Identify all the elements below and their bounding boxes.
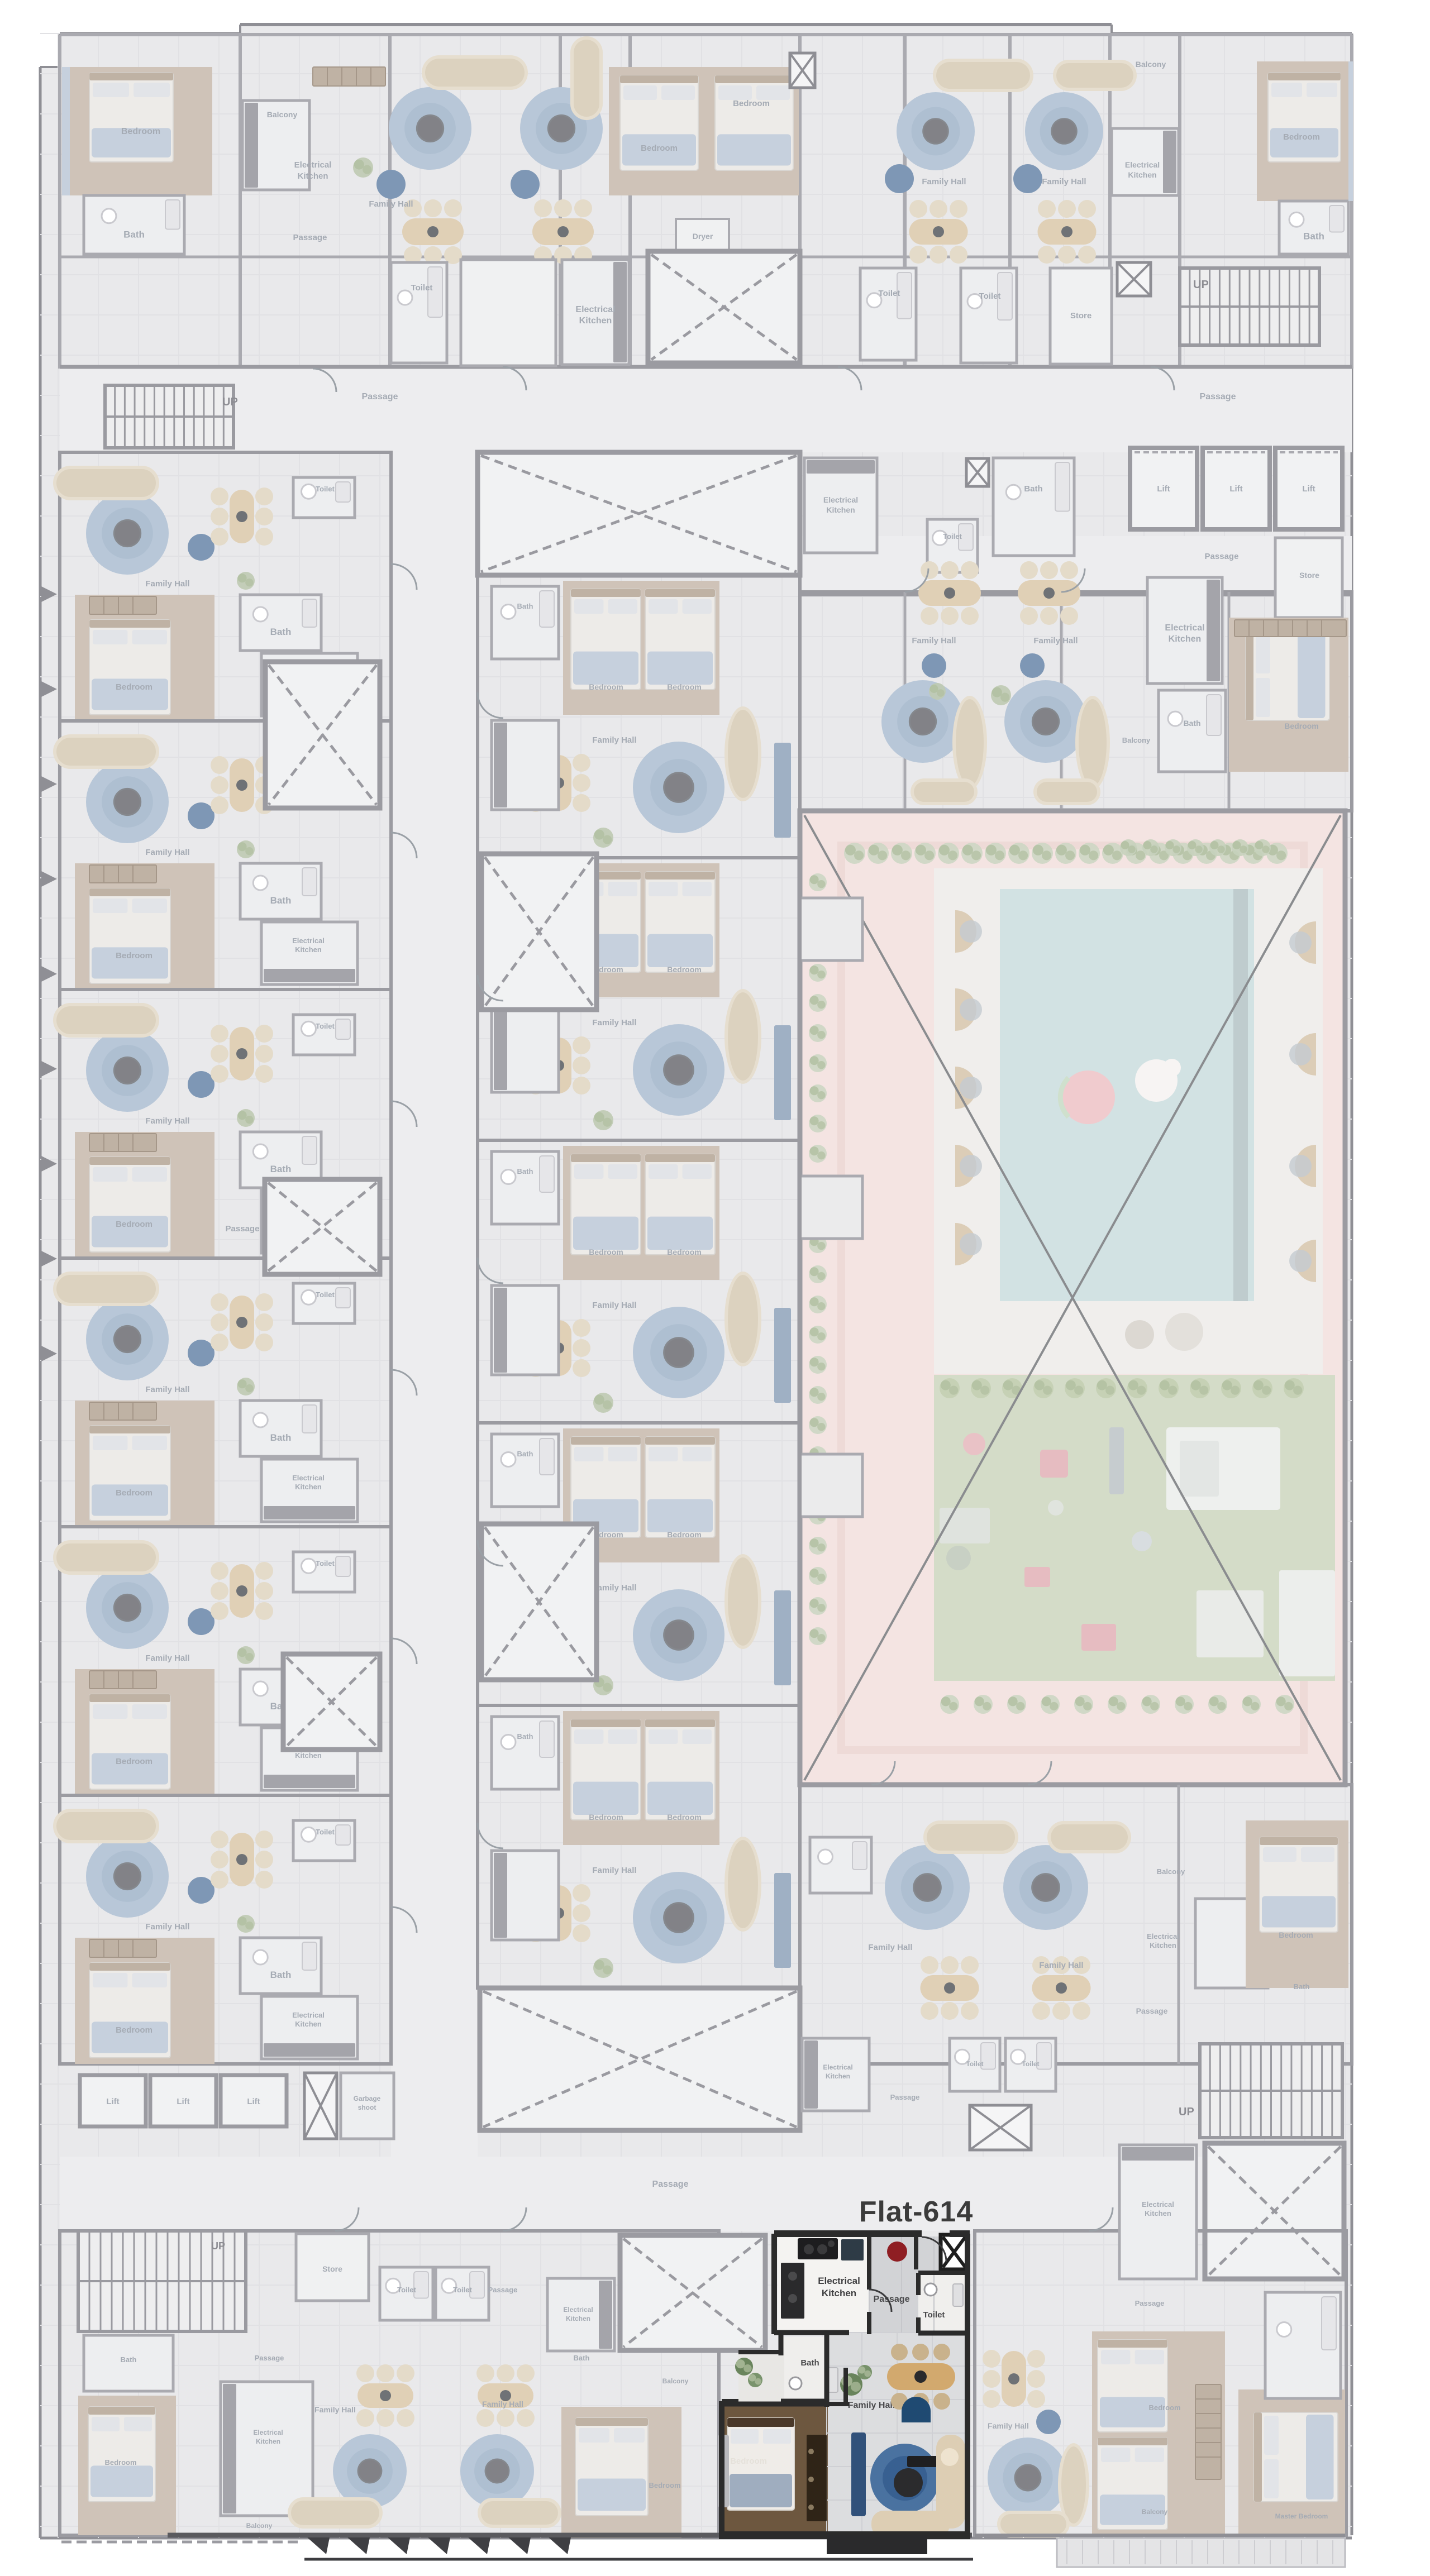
svg-text:Balcony: Balcony [1142,2508,1168,2516]
svg-text:Kitchen: Kitchen [256,2438,280,2445]
svg-text:Bedroom: Bedroom [733,99,770,108]
svg-text:Family Hall: Family Hall [145,1922,189,1932]
svg-text:Balcony: Balcony [246,2522,273,2530]
svg-text:Family Hall: Family Hall [1033,636,1078,646]
svg-text:Bedroom: Bedroom [667,1248,701,1256]
svg-text:Kitchen: Kitchen [1128,170,1156,179]
svg-text:Bedroom: Bedroom [116,1220,152,1229]
svg-text:Family Hall: Family Hall [592,735,636,745]
svg-text:Kitchen: Kitchen [1145,2209,1171,2217]
svg-text:Family Hall: Family Hall [912,636,956,646]
svg-text:shoot: shoot [358,2104,376,2111]
svg-text:Bedroom: Bedroom [116,951,152,960]
svg-text:Family Hall: Family Hall [988,2421,1029,2430]
svg-text:Lift: Lift [1157,484,1170,494]
svg-text:Passage: Passage [890,2093,920,2101]
svg-text:Toilet: Toilet [397,2286,416,2294]
svg-text:Toilet: Toilet [316,1291,335,1299]
svg-text:Family Hall: Family Hall [1042,177,1086,187]
svg-text:Lift: Lift [247,2097,260,2106]
svg-text:Bath: Bath [270,1432,292,1443]
svg-text:Bedroom: Bedroom [116,1757,152,1766]
svg-text:Kitchen: Kitchen [295,2020,322,2028]
svg-text:Family Hall: Family Hall [145,579,189,589]
svg-text:Master Bedroom: Master Bedroom [1275,2512,1328,2520]
svg-text:Bath: Bath [1303,231,1324,241]
svg-text:Flat-614: Flat-614 [859,2196,974,2228]
svg-text:Toilet: Toilet [943,532,962,541]
svg-text:Lift: Lift [177,2097,189,2106]
svg-text:Electrical: Electrical [1147,1932,1179,1941]
svg-text:Electrical: Electrical [823,2063,852,2071]
svg-text:Kitchen: Kitchen [826,505,855,514]
svg-text:Bedroom: Bedroom [589,1813,623,1822]
svg-text:Bedroom: Bedroom [1283,132,1320,142]
svg-text:UP: UP [1193,279,1209,291]
svg-text:Bedroom: Bedroom [667,1813,701,1822]
svg-text:Toilet: Toilet [316,1828,335,1836]
svg-text:Family Hall: Family Hall [868,1943,912,1952]
svg-text:Bedroom: Bedroom [667,1530,701,1539]
svg-text:Bedroom: Bedroom [667,682,701,691]
svg-text:Bath: Bath [517,1732,533,1741]
svg-text:Family Hall: Family Hall [145,1116,189,1126]
svg-text:Family Hall: Family Hall [482,2400,523,2408]
svg-text:Bath: Bath [517,1167,533,1175]
svg-text:Bath: Bath [517,1450,533,1458]
svg-text:Family Hall: Family Hall [592,1866,636,1875]
svg-text:Bedroom: Bedroom [730,2456,767,2466]
svg-text:Bath: Bath [270,1164,292,1174]
svg-text:Kitchen: Kitchen [579,316,612,326]
svg-text:UP: UP [1179,2106,1194,2118]
svg-text:Family Hall: Family Hall [369,199,413,209]
svg-text:Passage: Passage [362,392,398,402]
svg-text:Bath: Bath [1294,1982,1310,1991]
svg-text:Lift: Lift [1302,484,1315,494]
svg-text:Kitchen: Kitchen [297,171,328,181]
svg-text:Passage: Passage [1200,392,1236,402]
svg-text:Passage: Passage [226,1224,260,1234]
svg-text:Toilet: Toilet [966,2060,983,2068]
svg-text:Balcony: Balcony [662,2377,689,2385]
svg-text:Kitchen: Kitchen [826,2072,850,2080]
svg-text:Bedroom: Bedroom [649,2481,680,2489]
svg-text:Bath: Bath [1024,484,1042,494]
svg-text:Toilet: Toilet [923,2310,945,2320]
svg-text:Store: Store [1070,311,1091,321]
svg-text:Toilet: Toilet [316,1022,335,1030]
svg-text:Electrical: Electrical [1165,623,1204,633]
svg-text:Bath: Bath [270,1970,292,1980]
svg-text:Balcony: Balcony [1122,736,1151,744]
svg-text:Bath: Bath [123,230,145,240]
svg-text:Bedroom: Bedroom [116,682,152,692]
svg-text:Balcony: Balcony [1157,1867,1185,1876]
svg-text:Bath: Bath [800,2358,819,2368]
svg-text:Kitchen: Kitchen [1150,1941,1176,1949]
svg-text:Lift: Lift [106,2097,119,2106]
svg-text:Bedroom: Bedroom [116,2025,152,2035]
svg-text:Electrical: Electrical [575,305,615,314]
svg-text:Family Hall: Family Hall [848,2401,895,2410]
svg-text:Family Hall: Family Hall [145,1385,189,1394]
svg-text:Passage: Passage [652,2180,689,2189]
svg-text:Electrical: Electrical [563,2306,593,2314]
svg-text:Electrical: Electrical [292,936,325,945]
svg-text:Bedroom: Bedroom [589,682,623,691]
svg-text:Bath: Bath [574,2354,590,2362]
svg-text:Dryer: Dryer [693,232,713,241]
svg-text:Bedroom: Bedroom [116,1488,152,1498]
svg-text:Family Hall: Family Hall [592,1301,636,1310]
svg-text:Bedroom: Bedroom [1284,721,1318,730]
svg-text:Family Hall: Family Hall [145,1653,189,1663]
svg-text:Passage: Passage [874,2295,910,2304]
svg-text:Passage: Passage [488,2286,518,2294]
svg-text:Electrical: Electrical [292,2011,325,2019]
svg-text:Electrical: Electrical [294,160,332,170]
svg-text:Bath: Bath [121,2355,137,2364]
svg-text:Lift: Lift [1229,484,1242,494]
svg-text:Toilet: Toilet [453,2286,472,2294]
svg-text:Kitchen: Kitchen [1169,634,1202,644]
svg-text:Passage: Passage [1205,552,1239,561]
svg-text:Store: Store [322,2264,342,2273]
svg-text:Family Hall: Family Hall [1039,1961,1083,1970]
svg-text:Toilet: Toilet [879,289,900,298]
svg-text:Bath: Bath [1183,719,1200,728]
svg-text:Electrical: Electrical [818,2276,860,2286]
svg-text:Passage: Passage [255,2354,284,2362]
svg-text:Bedroom: Bedroom [641,144,678,153]
svg-text:Family Hall: Family Hall [145,848,189,857]
svg-text:Bedroom: Bedroom [104,2458,136,2467]
svg-text:Toilet: Toilet [979,291,1001,301]
svg-text:Balcony: Balcony [267,110,298,119]
svg-text:Store: Store [1299,571,1319,580]
svg-text:Family Hall: Family Hall [922,177,966,187]
svg-text:Kitchen: Kitchen [295,945,322,954]
svg-text:Electrical: Electrical [1142,2200,1174,2209]
svg-text:Kitchen: Kitchen [295,1483,322,1491]
svg-text:Balcony: Balcony [1136,60,1166,69]
svg-text:Garbage: Garbage [354,2095,381,2102]
svg-text:UP: UP [222,396,238,408]
svg-text:Toilet: Toilet [316,485,335,493]
svg-text:Electrical: Electrical [253,2429,283,2436]
svg-text:Toilet: Toilet [1022,2060,1039,2068]
svg-text:Electrical: Electrical [823,495,858,504]
svg-text:Electrical: Electrical [292,1474,325,1482]
svg-text:Electrical: Electrical [1125,160,1160,169]
svg-text:Bedroom: Bedroom [1279,1930,1313,1939]
svg-text:Toilet: Toilet [411,283,433,293]
svg-text:Bath: Bath [270,895,292,906]
svg-text:Bath: Bath [270,627,292,637]
svg-text:Passage: Passage [1136,2006,1168,2015]
svg-text:Bedroom: Bedroom [589,1248,623,1256]
svg-text:Kitchen: Kitchen [295,1751,322,1760]
svg-text:Passage: Passage [293,233,327,242]
svg-text:Family Hall: Family Hall [592,1018,636,1027]
svg-text:Bath: Bath [517,602,533,610]
svg-text:Toilet: Toilet [316,1559,335,1567]
svg-text:Bedroom: Bedroom [667,965,701,974]
svg-text:UP: UP [211,2240,225,2252]
svg-text:Bedroom: Bedroom [1148,2403,1180,2412]
svg-text:Kitchen: Kitchen [822,2288,856,2298]
svg-text:Bedroom: Bedroom [121,127,160,136]
svg-text:Passage: Passage [1135,2299,1165,2307]
svg-text:Kitchen: Kitchen [566,2315,590,2322]
svg-text:Family Hall: Family Hall [314,2405,356,2414]
